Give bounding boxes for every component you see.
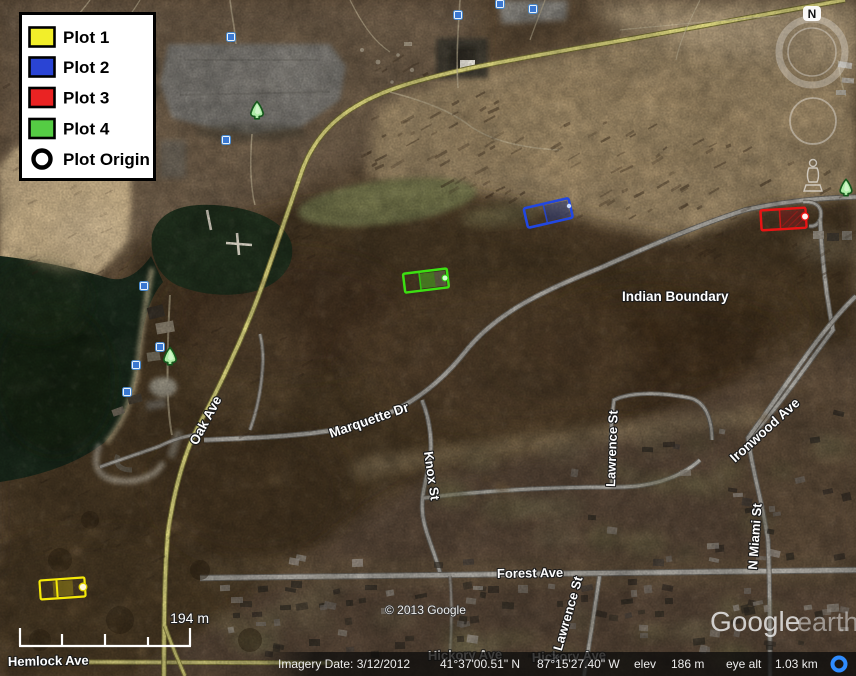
svg-text:eye alt: eye alt: [726, 657, 762, 671]
svg-text:1.03 km: 1.03 km: [775, 657, 818, 671]
svg-text:Plot 1: Plot 1: [63, 28, 109, 47]
svg-text:Plot Origin: Plot Origin: [63, 150, 150, 169]
svg-text:N: N: [808, 7, 817, 21]
svg-text:41°37'00.51" N: 41°37'00.51" N: [440, 657, 520, 671]
svg-text:Plot 4: Plot 4: [63, 120, 110, 139]
svg-text:Plot 2: Plot 2: [63, 58, 109, 77]
svg-text:© 2013 Google: © 2013 Google: [385, 603, 466, 617]
svg-text:87°15'27.40" W: 87°15'27.40" W: [537, 657, 620, 671]
svg-text:Imagery Date: 3/12/2012: Imagery Date: 3/12/2012: [278, 657, 410, 671]
svg-text:186 m: 186 m: [671, 657, 704, 671]
svg-text:Indian Boundary: Indian Boundary: [622, 289, 729, 304]
svg-text:elev: elev: [634, 657, 656, 671]
svg-text:Plot 3: Plot 3: [63, 89, 109, 108]
svg-text:194 m: 194 m: [170, 610, 209, 626]
svg-text:earth: earth: [797, 607, 856, 637]
svg-text:Hemlock Ave: Hemlock Ave: [8, 653, 89, 669]
svg-text:Google: Google: [710, 606, 800, 637]
svg-text:Forest Ave: Forest Ave: [497, 565, 563, 581]
svg-text:Lawrence St: Lawrence St: [603, 409, 621, 487]
